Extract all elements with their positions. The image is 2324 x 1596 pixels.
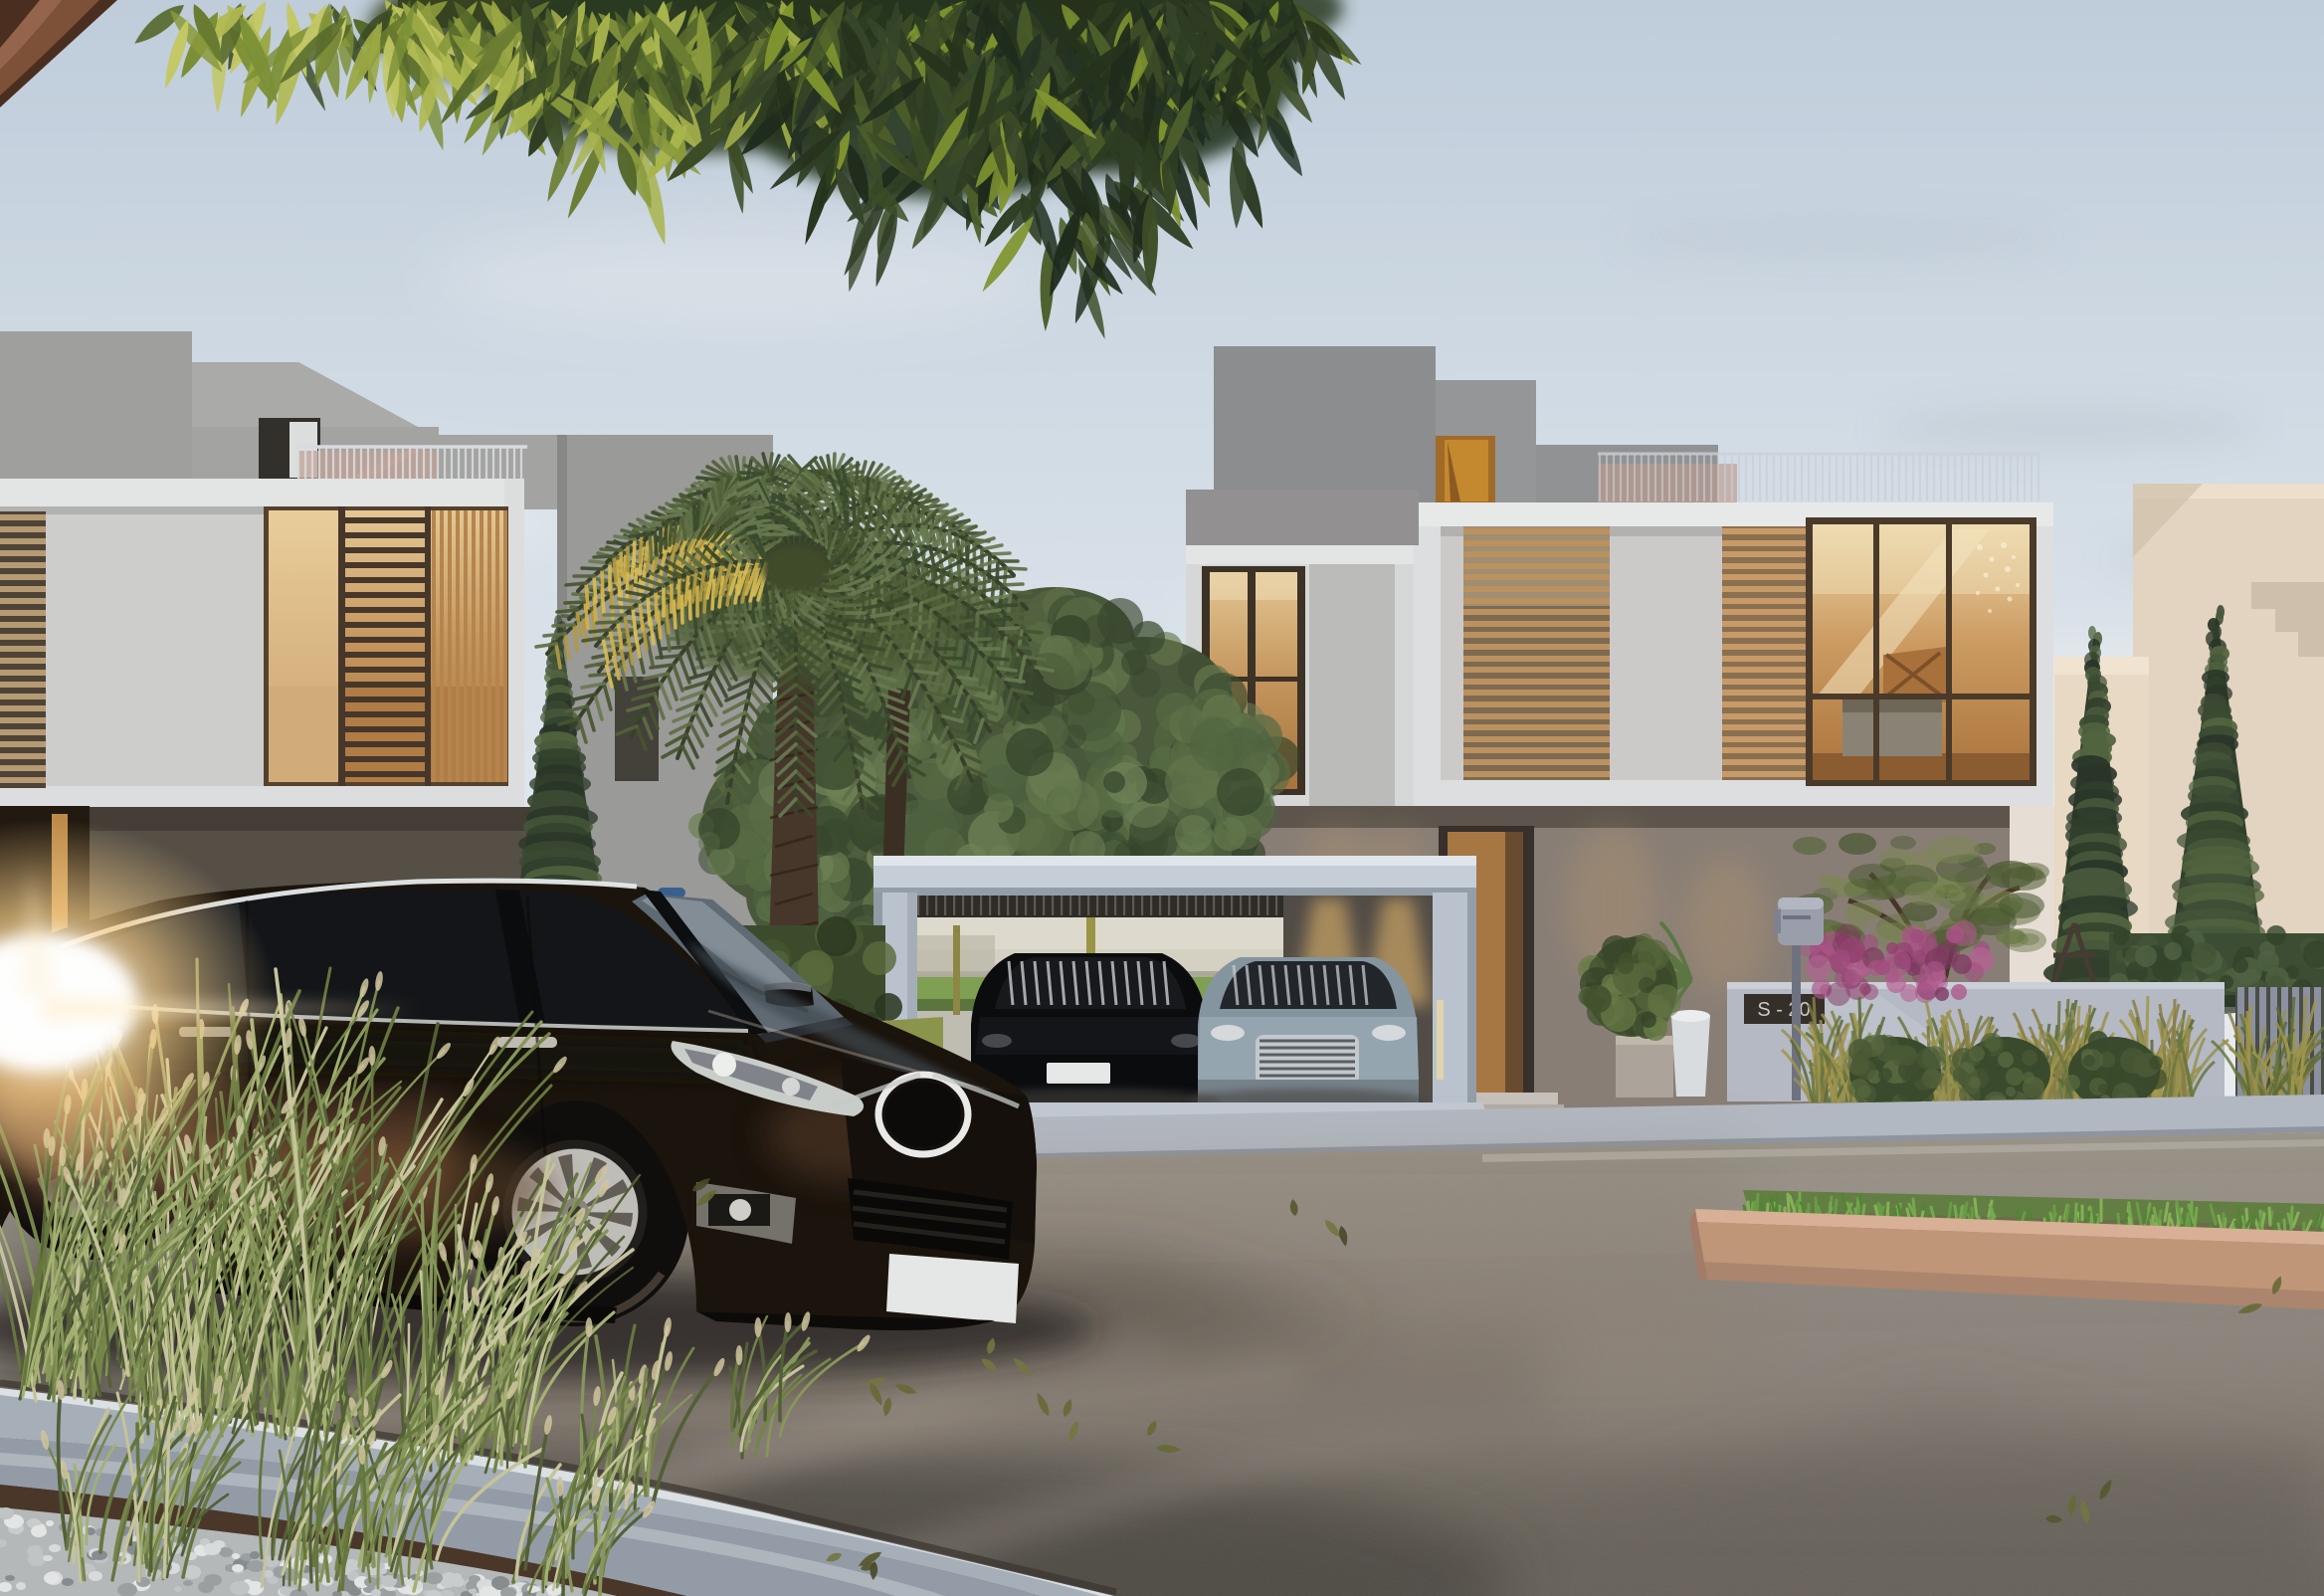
svg-text:S - 20: S - 20 [1757, 999, 1810, 1021]
